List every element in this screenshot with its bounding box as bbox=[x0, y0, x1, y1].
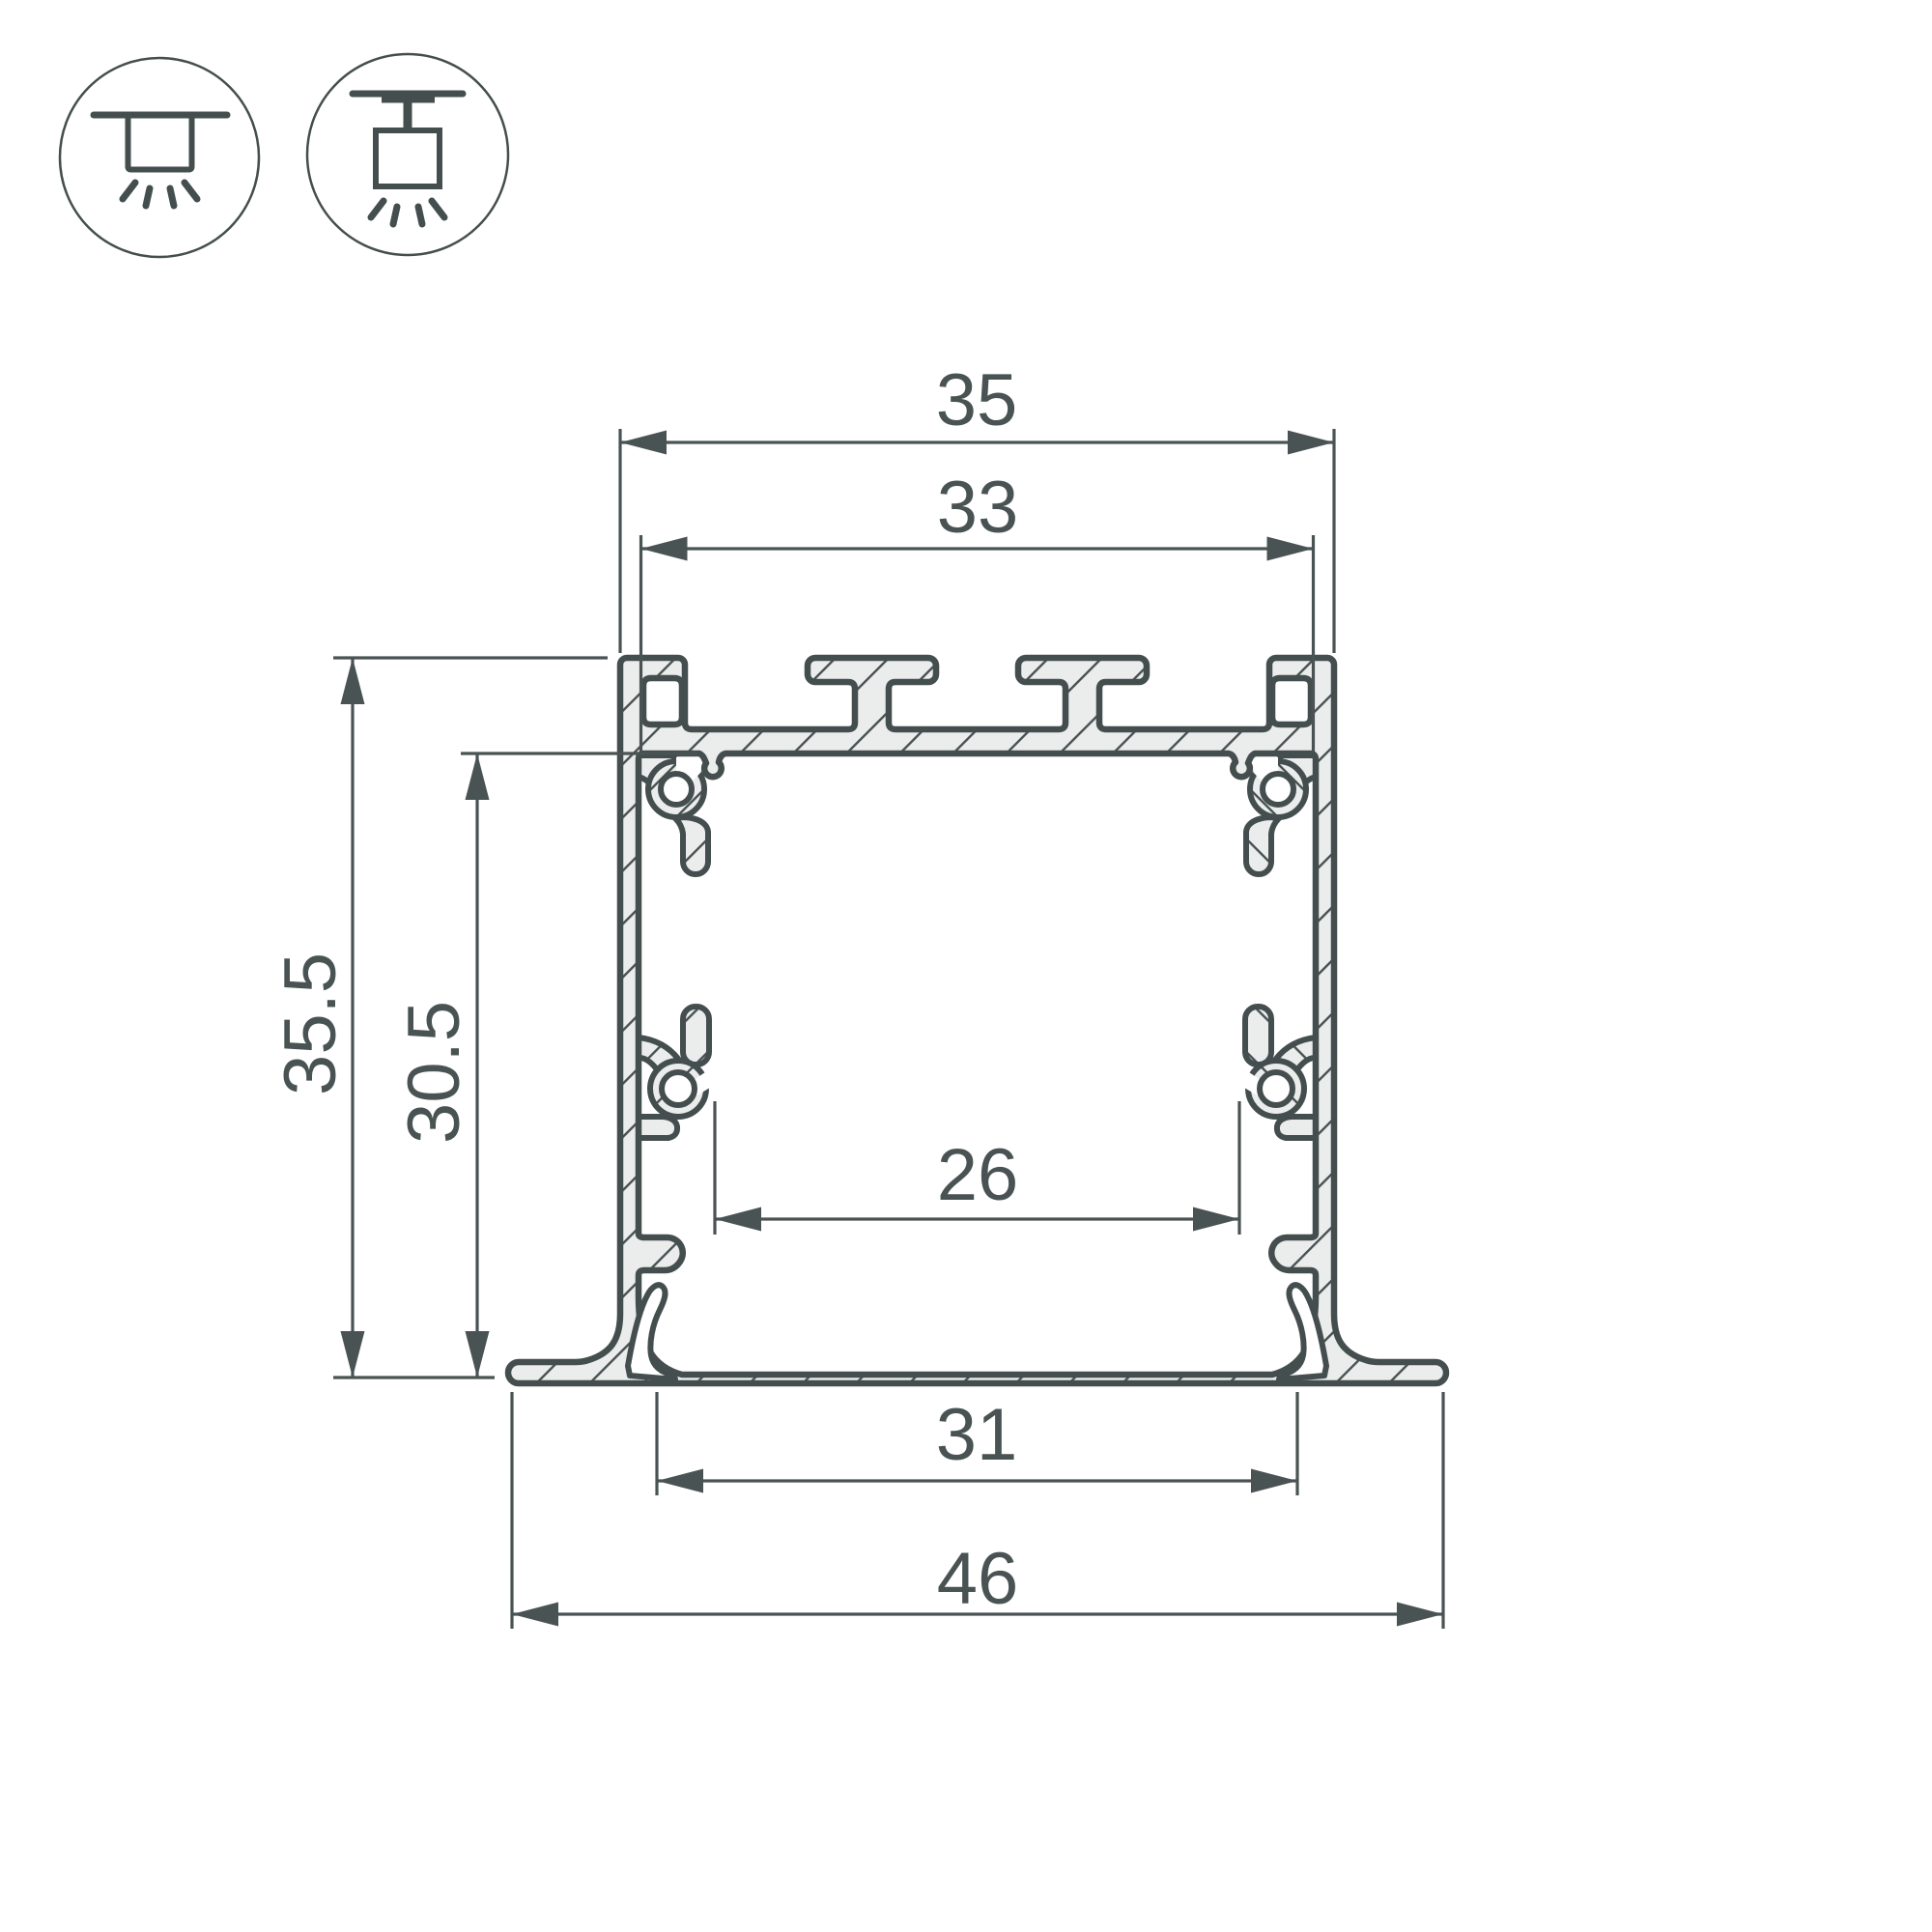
svg-text:35: 35 bbox=[936, 359, 1018, 441]
svg-text:46: 46 bbox=[937, 1538, 1019, 1620]
svg-text:33: 33 bbox=[937, 467, 1019, 549]
svg-text:31: 31 bbox=[936, 1394, 1018, 1476]
svg-text:35.5: 35.5 bbox=[270, 952, 352, 1095]
svg-text:30.5: 30.5 bbox=[393, 1001, 475, 1144]
svg-text:26: 26 bbox=[937, 1134, 1019, 1216]
